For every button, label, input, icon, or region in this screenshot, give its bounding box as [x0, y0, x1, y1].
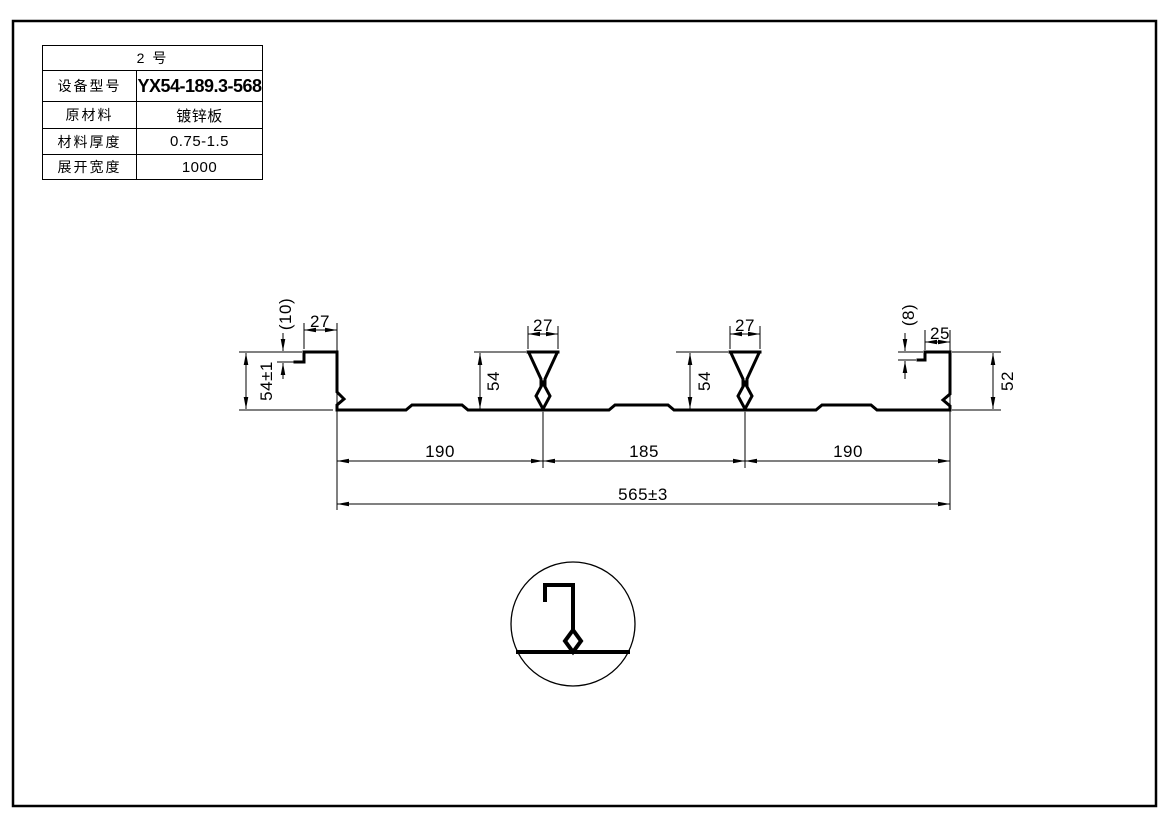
- detail-seam-profile: [518, 585, 628, 652]
- title-block-value-thickness: 0.75-1.5: [136, 128, 262, 154]
- dim-span-left: 190: [425, 442, 455, 461]
- drawing-sheet: 27 (10) 54±1 27 54 27 54 (8) 25 52 190 1…: [0, 0, 1169, 827]
- dim-span-mid: 185: [629, 442, 659, 461]
- title-block-label-thickness: 材料厚度: [43, 128, 136, 154]
- dim-rib1-top-width: 27: [533, 316, 553, 335]
- title-block-machine-no: 2 号: [43, 46, 262, 70]
- dim-total-width: 565±3: [618, 485, 668, 504]
- title-block-label-model: 设备型号: [43, 70, 136, 101]
- title-block-value-model: YX54-189.3-568: [136, 70, 262, 101]
- dim-left-top-width: 27: [310, 312, 330, 331]
- dim-right-lip-height: (8): [899, 304, 918, 326]
- dim-left-lip-height: (10): [276, 298, 295, 330]
- dim-right-top-width: 25: [930, 324, 950, 343]
- profile-section: [295, 352, 950, 410]
- title-block: 2 号 设备型号 YX54-189.3-568 原材料 镀锌板 材料厚度 0.7…: [42, 45, 263, 180]
- profile-rib1: [528, 352, 558, 409]
- detail-circle: [511, 562, 635, 686]
- title-block-value-unfold-width: 1000: [136, 154, 262, 179]
- dim-left-height: 54±1: [257, 361, 276, 401]
- dimension-lines: [239, 323, 1001, 510]
- profile-rib2: [730, 352, 760, 409]
- dim-rib2-height: 54: [695, 371, 714, 391]
- title-block-label-material: 原材料: [43, 101, 136, 128]
- title-block-value-material: 镀锌板: [136, 101, 262, 128]
- title-block-label-unfold-width: 展开宽度: [43, 154, 136, 179]
- dim-rib2-top-width: 27: [735, 316, 755, 335]
- dim-right-height: 52: [998, 371, 1017, 391]
- dimension-texts: 27 (10) 54±1 27 54 27 54 (8) 25 52 190 1…: [257, 298, 1017, 504]
- dim-rib1-height: 54: [484, 371, 503, 391]
- profile-main-outline: [295, 352, 950, 410]
- dim-span-right: 190: [833, 442, 863, 461]
